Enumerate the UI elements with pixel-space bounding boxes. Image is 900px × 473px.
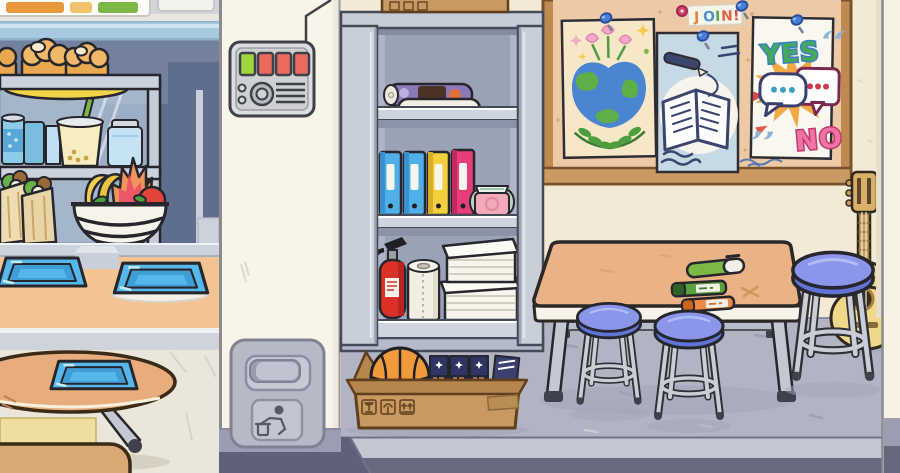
paper-stacks[interactable]: [441, 239, 519, 320]
paper-towel-roll[interactable]: [408, 260, 439, 320]
table-top: [534, 242, 800, 306]
bench[interactable]: [0, 418, 96, 446]
green-button[interactable]: [240, 53, 255, 75]
yes-no-poster[interactable]: YES NO: [751, 17, 847, 159]
green-marker[interactable]: [672, 281, 727, 297]
cabinet-floor-shelf: [377, 320, 518, 338]
platform-step: [341, 437, 900, 458]
cabinet-shelf: [377, 215, 518, 236]
box-tape: [488, 395, 519, 410]
cart-top-rail: [0, 75, 160, 89]
wall-stripe: [0, 21, 219, 41]
control-panel[interactable]: [230, 42, 314, 116]
serving-counter: [0, 243, 219, 350]
join-sign[interactable]: J O I N !: [688, 4, 743, 26]
storage-cabinet[interactable]: [341, 0, 543, 351]
tray[interactable]: [51, 361, 137, 388]
menu-sign-2[interactable]: [158, 0, 214, 11]
join-letter: I: [715, 9, 721, 25]
caster-wheel: [128, 439, 142, 453]
no-label: NO: [794, 122, 844, 157]
bulletin-board[interactable]: J O I N !: [543, 0, 851, 184]
binder-yellow[interactable]: [428, 152, 449, 215]
yes-label: YES: [759, 37, 820, 71]
stool-shadow: [785, 382, 881, 398]
join-letter: N: [721, 8, 733, 24]
open-book: [663, 90, 729, 150]
binder-blue[interactable]: [380, 152, 401, 215]
cabinet-shelf: [377, 107, 518, 128]
join-letter: O: [703, 9, 716, 25]
pillar-baseboard: [884, 418, 900, 446]
book-poster[interactable]: [657, 33, 739, 172]
tray-riser[interactable]: [75, 246, 119, 253]
game-scene: J O I N !: [0, 0, 900, 473]
red-button[interactable]: [276, 53, 291, 75]
wrap-sandwich-2[interactable]: [22, 177, 56, 244]
binder-blue[interactable]: [404, 152, 425, 215]
trash-icon: [252, 400, 302, 440]
folded-shirt[interactable]: [470, 186, 514, 215]
table-foot: [544, 391, 563, 402]
platform-front: [341, 458, 900, 473]
lower-table[interactable]: [0, 444, 130, 473]
cafeteria-section: [0, 0, 219, 473]
stool-shadow: [647, 419, 731, 433]
indicator-dot: [239, 97, 246, 104]
earth-poster[interactable]: [562, 19, 656, 158]
floor-front-dark: [219, 452, 341, 473]
join-letter: J: [693, 10, 700, 26]
box-on-cabinet[interactable]: [382, 0, 508, 12]
hallway-wall-section: [219, 0, 341, 473]
red-button[interactable]: [294, 53, 309, 75]
juice-jar[interactable]: [108, 120, 142, 166]
cabinet-left-door[interactable]: [341, 26, 377, 345]
soda-cans[interactable]: [2, 115, 44, 165]
stool-shadow: [569, 407, 649, 421]
indicator-dot: [239, 85, 246, 92]
tray[interactable]: [114, 263, 207, 293]
trash-can[interactable]: [231, 340, 324, 447]
box-lip: [347, 380, 527, 394]
red-button[interactable]: [258, 53, 273, 75]
menu-sign[interactable]: [0, 0, 150, 16]
tray[interactable]: [0, 258, 86, 286]
